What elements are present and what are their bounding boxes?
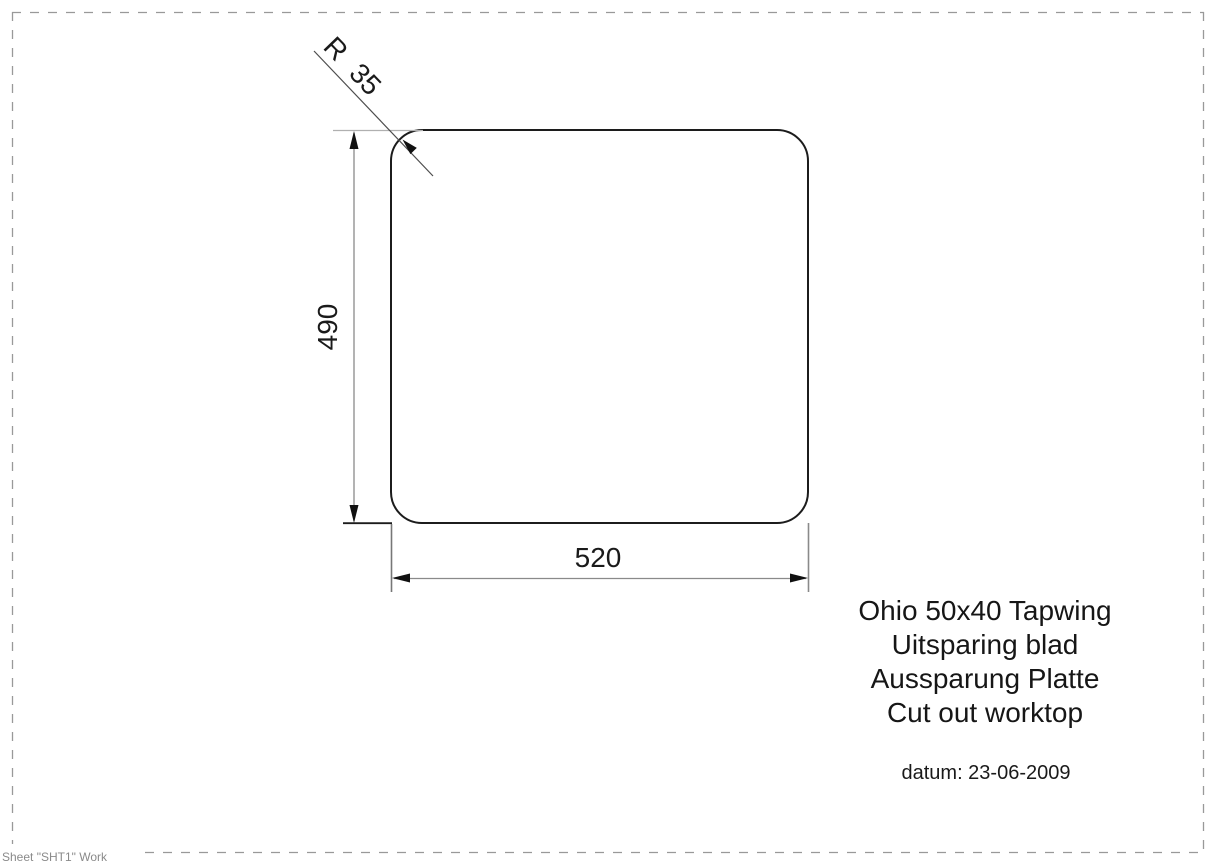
title-line-2: Uitsparing blad	[892, 629, 1079, 660]
title-line-1: Ohio 50x40 Tapwing	[858, 595, 1111, 626]
cutout-outline	[391, 130, 808, 523]
cad-drawing: 490 520 R 35 Ohio 50x40 Tapwing Uitspari…	[0, 0, 1220, 868]
arrow-left-icon	[392, 574, 410, 583]
title-line-3: Aussparung Platte	[871, 663, 1100, 694]
width-dimension-label: 520	[575, 542, 622, 573]
date-label: datum: 23-06-2009	[901, 762, 1070, 784]
arrow-down-icon	[350, 505, 359, 523]
height-dimension-label: 490	[312, 304, 343, 351]
page: { "sheet": { "label": "Sheet \"SHT1\" Wo…	[0, 0, 1220, 868]
title-line-4: Cut out worktop	[887, 697, 1083, 728]
drawing-canvas: 490 520 R 35 Ohio 50x40 Tapwing Uitspari…	[0, 0, 1220, 868]
arrow-right-icon	[790, 574, 808, 583]
arrow-up-icon	[350, 131, 359, 149]
title-block: Ohio 50x40 Tapwing Uitsparing blad Aussp…	[858, 595, 1111, 728]
sheet-label: Sheet "SHT1" Work	[2, 850, 108, 864]
